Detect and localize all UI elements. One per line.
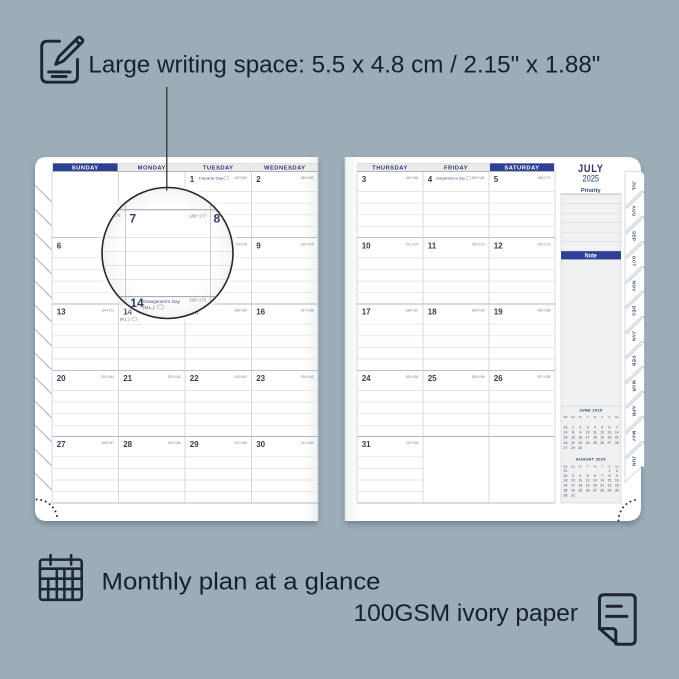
svg-text:Large writing space: 5.5 x 4.8: Large writing space: 5.5 x 4.8 cm / 2.15… xyxy=(88,52,600,79)
svg-text:23: 23 xyxy=(564,425,568,429)
svg-text:APR: APR xyxy=(632,406,637,417)
svg-text:8: 8 xyxy=(609,474,611,478)
svg-text:36: 36 xyxy=(564,494,568,498)
svg-text:7: 7 xyxy=(601,474,603,478)
svg-text:201+164: 201+164 xyxy=(101,375,114,379)
svg-text:F: F xyxy=(609,415,611,419)
svg-text:14: 14 xyxy=(600,479,604,483)
svg-text:29: 29 xyxy=(608,489,612,493)
svg-text:5: 5 xyxy=(494,175,499,184)
svg-text:TUESDAY: TUESDAY xyxy=(203,166,234,172)
svg-text:Priority: Priority xyxy=(581,188,601,194)
svg-text:22: 22 xyxy=(190,374,199,383)
svg-text:22: 22 xyxy=(608,484,612,488)
svg-text:4: 4 xyxy=(594,425,596,429)
svg-text:JUNE 2025: JUNE 2025 xyxy=(579,408,603,413)
svg-text:12: 12 xyxy=(494,241,503,250)
svg-text:2: 2 xyxy=(579,425,581,429)
svg-text:28: 28 xyxy=(615,441,619,445)
svg-text:20: 20 xyxy=(57,374,66,383)
svg-text:2: 2 xyxy=(616,469,618,473)
svg-text:Su: Su xyxy=(571,415,575,419)
svg-text:200+165: 200+165 xyxy=(538,309,551,313)
svg-text:23: 23 xyxy=(615,484,619,488)
svg-text:30: 30 xyxy=(256,440,265,449)
svg-text:2025: 2025 xyxy=(583,174,600,184)
svg-text:JAN: JAN xyxy=(632,331,637,342)
svg-text:198+167: 198+167 xyxy=(406,309,419,313)
svg-text:NOV: NOV xyxy=(632,281,637,293)
svg-text:199+166: 199+166 xyxy=(472,309,485,313)
svg-text:MAY: MAY xyxy=(632,431,637,442)
svg-text:23: 23 xyxy=(256,374,265,383)
svg-text:5: 5 xyxy=(587,474,589,478)
svg-text:9: 9 xyxy=(616,474,618,478)
svg-text:210+155: 210+155 xyxy=(234,441,247,445)
svg-text:31: 31 xyxy=(362,440,371,449)
svg-text:190+175: 190+175 xyxy=(301,242,314,246)
svg-text:5: 5 xyxy=(601,425,603,429)
svg-text:8: 8 xyxy=(572,431,574,435)
svg-text:23: 23 xyxy=(578,441,582,445)
svg-text:29: 29 xyxy=(571,446,575,450)
svg-text:182+183: 182+183 xyxy=(234,176,247,180)
svg-text:194+171: 194+171 xyxy=(101,309,114,313)
svg-text:188+177: 188+177 xyxy=(189,213,206,218)
svg-text:SUNDAY: SUNDAY xyxy=(72,166,99,172)
svg-text:192+173: 192+173 xyxy=(472,242,485,246)
svg-text:10: 10 xyxy=(362,241,371,250)
svg-text:Canada Day: Canada Day xyxy=(199,176,224,181)
svg-text:16: 16 xyxy=(578,436,582,440)
svg-text:24: 24 xyxy=(362,374,371,383)
svg-text:17: 17 xyxy=(362,308,371,317)
svg-text:Su: Su xyxy=(571,465,575,469)
svg-text:16: 16 xyxy=(256,308,265,317)
svg-text:191+174: 191+174 xyxy=(406,242,419,246)
svg-text:30: 30 xyxy=(615,489,619,493)
svg-text:3: 3 xyxy=(362,175,367,184)
svg-text:9: 9 xyxy=(256,241,261,250)
svg-text:11: 11 xyxy=(578,479,582,483)
svg-text:11: 11 xyxy=(593,431,597,435)
svg-text:185+180: 185+180 xyxy=(472,176,485,180)
svg-text:196+169: 196+169 xyxy=(234,309,247,313)
svg-text:25: 25 xyxy=(593,441,597,445)
svg-text:1: 1 xyxy=(572,425,574,429)
svg-text:35: 35 xyxy=(564,489,568,493)
svg-text:24: 24 xyxy=(571,489,575,493)
svg-text:195+170: 195+170 xyxy=(189,298,206,303)
svg-text:183+182: 183+182 xyxy=(301,176,314,180)
svg-text:27: 27 xyxy=(564,446,568,450)
svg-text:AUGUST 2025: AUGUST 2025 xyxy=(576,457,607,462)
svg-text:1: 1 xyxy=(609,469,611,473)
svg-text:SATURDAY: SATURDAY xyxy=(504,166,539,172)
svg-text:SEP: SEP xyxy=(632,231,637,241)
svg-text:14: 14 xyxy=(615,431,619,435)
svg-text:205+160: 205+160 xyxy=(406,375,419,379)
svg-text:17: 17 xyxy=(586,436,590,440)
svg-text:W: W xyxy=(593,465,596,469)
svg-text:34: 34 xyxy=(564,484,568,488)
svg-text:25: 25 xyxy=(564,436,568,440)
svg-text:DEC: DEC xyxy=(632,306,637,317)
svg-text:100GSM ivory paper: 100GSM ivory paper xyxy=(354,600,579,627)
svg-text:27: 27 xyxy=(593,489,597,493)
svg-text:19: 19 xyxy=(494,308,503,317)
svg-text:26: 26 xyxy=(564,441,568,445)
svg-text:21: 21 xyxy=(615,436,619,440)
svg-text:19: 19 xyxy=(600,436,604,440)
svg-text:31: 31 xyxy=(571,494,575,498)
svg-text:28: 28 xyxy=(600,489,604,493)
svg-text:T: T xyxy=(587,415,589,419)
svg-text:193+172: 193+172 xyxy=(538,242,551,246)
svg-text:16: 16 xyxy=(615,479,619,483)
svg-text:22: 22 xyxy=(571,441,575,445)
svg-text:Independence Day: Independence Day xyxy=(436,177,465,181)
svg-text:W: W xyxy=(593,415,596,419)
svg-text:7: 7 xyxy=(130,212,137,226)
svg-text:T: T xyxy=(601,415,603,419)
svg-text:7: 7 xyxy=(616,425,618,429)
svg-text:33: 33 xyxy=(564,479,568,483)
svg-text:1: 1 xyxy=(190,175,195,184)
svg-text:4: 4 xyxy=(579,474,581,478)
svg-text:184+181: 184+181 xyxy=(406,176,419,180)
svg-text:JUN: JUN xyxy=(632,456,637,467)
svg-text:24: 24 xyxy=(564,431,568,435)
svg-text:26: 26 xyxy=(586,489,590,493)
svg-text:32: 32 xyxy=(564,474,568,478)
svg-text:26: 26 xyxy=(494,374,503,383)
svg-text:6: 6 xyxy=(57,241,62,250)
svg-text:(N.L.): (N.L.) xyxy=(120,318,130,322)
svg-text:28: 28 xyxy=(123,440,132,449)
svg-text:THURSDAY: THURSDAY xyxy=(372,166,408,172)
svg-text:26: 26 xyxy=(600,441,604,445)
svg-text:20: 20 xyxy=(593,484,597,488)
svg-text:24: 24 xyxy=(586,441,590,445)
svg-text:Sa: Sa xyxy=(615,415,619,419)
svg-text:Monthly plan at a glance: Monthly plan at a glance xyxy=(102,569,381,596)
svg-text:AUG: AUG xyxy=(632,205,637,216)
svg-text:13: 13 xyxy=(593,479,597,483)
svg-text:4: 4 xyxy=(428,175,433,184)
svg-text:Orangemen's Day: Orangemen's Day xyxy=(143,299,181,304)
svg-text:13: 13 xyxy=(608,431,612,435)
svg-text:WEDNESDAY: WEDNESDAY xyxy=(264,166,306,172)
svg-text:15: 15 xyxy=(571,436,575,440)
svg-text:197+168: 197+168 xyxy=(301,309,314,313)
svg-text:11: 11 xyxy=(428,241,437,250)
svg-text:211+154: 211+154 xyxy=(301,441,314,445)
svg-text:30: 30 xyxy=(578,446,582,450)
svg-text:18: 18 xyxy=(578,484,582,488)
svg-text:3: 3 xyxy=(572,474,574,478)
svg-text:MAR: MAR xyxy=(632,380,637,392)
svg-text:FEB: FEB xyxy=(632,356,637,367)
svg-text:202+163: 202+163 xyxy=(168,375,181,379)
svg-text:212+153: 212+153 xyxy=(406,441,419,445)
svg-text:25: 25 xyxy=(428,374,437,383)
svg-text:203+162: 203+162 xyxy=(234,375,247,379)
svg-text:Note: Note xyxy=(585,254,598,260)
svg-text:10: 10 xyxy=(571,479,575,483)
svg-text:12: 12 xyxy=(600,431,604,435)
svg-text:JUL: JUL xyxy=(632,181,637,191)
svg-text:21: 21 xyxy=(600,484,604,488)
svg-text:206+159: 206+159 xyxy=(472,375,485,379)
svg-text:18: 18 xyxy=(428,308,437,317)
svg-text:12: 12 xyxy=(586,479,590,483)
svg-text:15: 15 xyxy=(608,479,612,483)
svg-text:27: 27 xyxy=(608,441,612,445)
svg-text:29: 29 xyxy=(190,440,199,449)
svg-text:6: 6 xyxy=(609,425,611,429)
svg-text:20: 20 xyxy=(608,436,612,440)
svg-text:18: 18 xyxy=(593,436,597,440)
svg-text:FRIDAY: FRIDAY xyxy=(444,166,468,172)
svg-text:186+179: 186+179 xyxy=(538,176,551,180)
svg-text:209+156: 209+156 xyxy=(168,441,181,445)
svg-text:208+157: 208+157 xyxy=(101,441,114,445)
svg-text:204+161: 204+161 xyxy=(301,375,314,379)
svg-text:17: 17 xyxy=(571,484,575,488)
svg-text:10: 10 xyxy=(586,431,590,435)
svg-text:MONDAY: MONDAY xyxy=(138,166,166,172)
svg-text:13: 13 xyxy=(57,308,66,317)
svg-text:31: 31 xyxy=(564,469,568,473)
svg-text:19: 19 xyxy=(586,484,590,488)
svg-text:2: 2 xyxy=(256,175,261,184)
svg-text:T: T xyxy=(601,465,603,469)
svg-text:9: 9 xyxy=(579,431,581,435)
svg-text:OCT: OCT xyxy=(632,256,637,267)
svg-text:6: 6 xyxy=(594,474,596,478)
svg-text:(N.L.): (N.L.) xyxy=(143,305,155,310)
svg-text:207+158: 207+158 xyxy=(538,375,551,379)
svg-text:T: T xyxy=(587,465,589,469)
svg-text:3: 3 xyxy=(587,425,589,429)
svg-text:27: 27 xyxy=(57,440,66,449)
svg-text:21: 21 xyxy=(123,374,132,383)
svg-text:25: 25 xyxy=(578,489,582,493)
svg-text:Wk: Wk xyxy=(563,415,568,419)
